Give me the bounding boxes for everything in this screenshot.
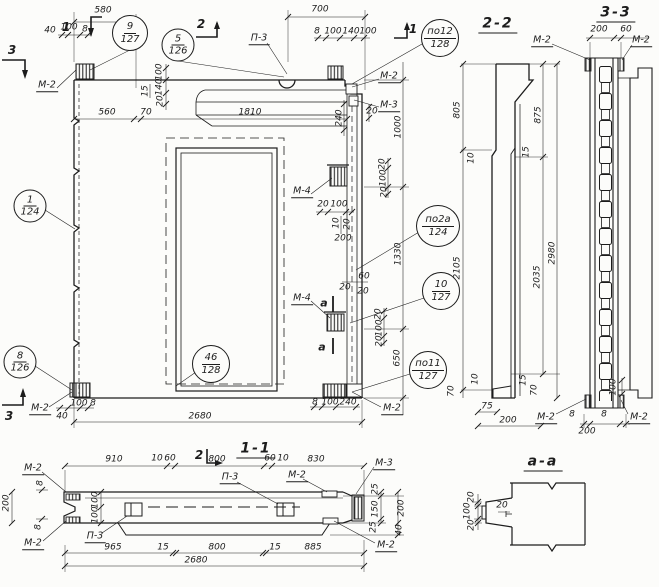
dim-1810: 1810 — [239, 109, 262, 118]
dim-200-pr: 200 — [398, 499, 407, 516]
dim-10-s22: 10 — [468, 152, 477, 163]
dim-805: 805 — [454, 101, 463, 118]
mark-m2-plan-top: М-2 — [286, 470, 308, 482]
dim-20-rsu: 20 — [379, 158, 388, 169]
dim-800-pt: 800 — [208, 456, 225, 465]
dim-200-mid: 200 — [334, 235, 351, 244]
dim-15-s22b: 15 — [520, 374, 529, 385]
dim-8-tr: 8 — [314, 28, 320, 37]
section-marker-2-top: 2 — [197, 18, 205, 30]
dim-70: 70 — [140, 109, 151, 118]
mark-m3-right: М-3 — [378, 100, 400, 112]
dim-10-p2: 10 — [277, 455, 288, 464]
dim-60-p2: 60 — [264, 455, 275, 464]
callout-8-126: 8126 — [4, 346, 37, 379]
dim-200-pl: 200 — [3, 494, 12, 511]
callout-46-128: 46128 — [192, 345, 230, 383]
mark-m3-plan: М-3 — [373, 458, 395, 470]
dim-10-mid: 10 — [333, 217, 342, 228]
dim-700: 700 — [311, 6, 328, 15]
dim-75-s22: 75 — [481, 403, 492, 412]
dim-2035: 2035 — [534, 266, 543, 289]
dim-2980: 2980 — [549, 242, 558, 265]
mark-m4-lower: М-4 — [291, 293, 313, 305]
dim-40-tl: 40 — [44, 27, 55, 36]
mark-m2-bottomright: М-2 — [381, 403, 403, 415]
dim-40-bl: 40 — [56, 413, 67, 422]
mark-m2-plan-bottomleft: М-2 — [22, 538, 44, 550]
callout-po2a-124: по2а124 — [416, 205, 460, 247]
mark-m2-s33-topleft: М-2 — [531, 35, 553, 47]
dim-910: 910 — [105, 456, 122, 465]
section-marker-3-topleft: 3 — [8, 44, 16, 56]
mark-m2-s33-topright: М-2 — [630, 35, 652, 47]
mark-p3-plan-right: П-3 — [220, 472, 241, 484]
mark-m2-topleft: М-2 — [36, 80, 58, 92]
dim-100-tl: 100 — [60, 24, 77, 33]
dim-2680-plan: 2680 — [185, 557, 208, 566]
dim-140-band: 140 — [156, 78, 165, 95]
callout-1-124: 1124 — [14, 190, 47, 223]
dim-25-pr: 25 — [372, 483, 381, 494]
dim-20-rsu2: 20 — [381, 186, 390, 197]
dim-650: 650 — [394, 349, 403, 366]
dim-2680-elevation: 2680 — [189, 413, 212, 422]
view-title-3-3: 3-3 — [596, 6, 635, 23]
dim-965: 965 — [104, 544, 121, 553]
view-title-a-a: а-а — [524, 455, 563, 472]
mark-m2-plan-bottomright: М-2 — [375, 540, 397, 552]
dim-8-pl2: 8 — [35, 524, 44, 530]
section-marker-3-bottomleft: 3 — [5, 410, 13, 422]
mark-m2-right: М-2 — [378, 71, 400, 83]
dim-70-s22l: 70 — [448, 385, 457, 396]
dim-20-rsl2: 20 — [376, 335, 385, 346]
dim-20-a: 20 — [339, 284, 350, 293]
dim-8-br: 8 — [312, 399, 318, 408]
section-marker-1-topright: 1 — [409, 23, 417, 35]
dim-100-pl2: 100 — [92, 506, 101, 523]
dim-140-tr: 140 — [342, 28, 359, 37]
dim-10-s22b: 10 — [472, 373, 481, 384]
view-title-2-2: 2-2 — [478, 17, 517, 34]
dim-100-rsu: 100 — [380, 169, 389, 186]
dim-8-s33r: 8 — [601, 411, 607, 420]
mark-p3-plan-left: П-3 — [85, 531, 106, 543]
dim-20-a2: 20 — [357, 288, 368, 297]
dim-20-aa: 20 — [468, 491, 477, 502]
dim-60-a: 60 — [358, 273, 369, 282]
dim-100-tr: 100 — [324, 28, 341, 37]
mark-m2-s33-bottomleft: М-2 — [535, 412, 557, 424]
dim-580: 580 — [94, 7, 111, 16]
dim-15-pb: 15 — [157, 544, 168, 553]
dim-20-band: 20 — [157, 95, 166, 106]
mark-m2-bottomleft: М-2 — [29, 403, 51, 415]
dim-15-band: 15 — [142, 85, 151, 96]
dim-15-pb2: 15 — [269, 544, 280, 553]
mark-m2-s33-bottomright: М-2 — [628, 412, 650, 424]
dim-20-aa3: 20 — [496, 502, 507, 511]
dim-70-s22r: 70 — [531, 384, 540, 395]
dim-20-mid: 20 — [317, 201, 328, 210]
dim-100-rsl: 100 — [376, 319, 385, 336]
dim-560: 560 — [98, 109, 115, 118]
callout-po12-128: по12128 — [421, 19, 459, 57]
dim-15-s22: 15 — [523, 146, 532, 157]
dim-100-mid: 100 — [330, 201, 347, 210]
cut-a-label-lower: a — [318, 342, 325, 353]
dim-240-br: 240 — [339, 399, 356, 408]
dim-875: 875 — [535, 106, 544, 123]
dim-800-pb: 800 — [208, 544, 225, 553]
dim-20-rsl: 20 — [375, 308, 384, 319]
dim-100-tr2: 100 — [359, 28, 376, 37]
dim-10-p: 10 — [151, 455, 162, 464]
dim-20-right: 20 — [366, 108, 377, 117]
dim-8-s33l: 8 — [569, 411, 575, 420]
dim-100-br: 100 — [321, 399, 338, 408]
dim-150-pr: 150 — [372, 500, 381, 517]
dim-2105: 2105 — [454, 257, 463, 280]
dim-1000: 1000 — [395, 116, 404, 139]
dim-8-bl: 8 — [90, 400, 96, 409]
dim-1330: 1330 — [395, 243, 404, 266]
dim-8-pl: 8 — [37, 480, 46, 486]
dim-60-p: 60 — [164, 455, 175, 464]
callout-po11-127: по11127 — [409, 351, 447, 389]
dim-240-right: 240 — [336, 109, 345, 126]
cut-a-label-upper: a — [320, 298, 327, 309]
mark-m4-upper: М-4 — [291, 186, 313, 198]
dim-200-s33: 200 — [590, 26, 607, 35]
callout-5-126: 5126 — [162, 29, 195, 62]
dim-40-pr: 40 — [396, 524, 405, 535]
dim-200-s33b: 200 — [578, 428, 595, 437]
dim-25-pr2: 25 — [370, 521, 379, 532]
dim-20-mid2: 20 — [344, 218, 353, 229]
dim-885: 885 — [304, 544, 321, 553]
dim-20-aa2: 20 — [468, 519, 477, 530]
dim-200-s22: 200 — [499, 417, 516, 426]
dim-100-bl: 100 — [70, 400, 87, 409]
callout-9-127: 9127 — [112, 15, 148, 51]
blueprint-panel-drawing: 1 3 2 1 3 a a 9127 5126 по12128 1124 по2… — [0, 0, 659, 587]
dim-830: 830 — [307, 456, 324, 465]
dim-60-s33: 60 — [620, 26, 631, 35]
dim-100-aa: 100 — [464, 502, 473, 519]
dim-100-s33: 100 — [610, 378, 619, 395]
dim-8-tl: 8 — [82, 26, 88, 35]
section-marker-2-plan: 2 — [195, 449, 203, 461]
mark-p3-top: П-3 — [249, 33, 270, 45]
mark-m2-plan-topleft: М-2 — [22, 463, 44, 475]
